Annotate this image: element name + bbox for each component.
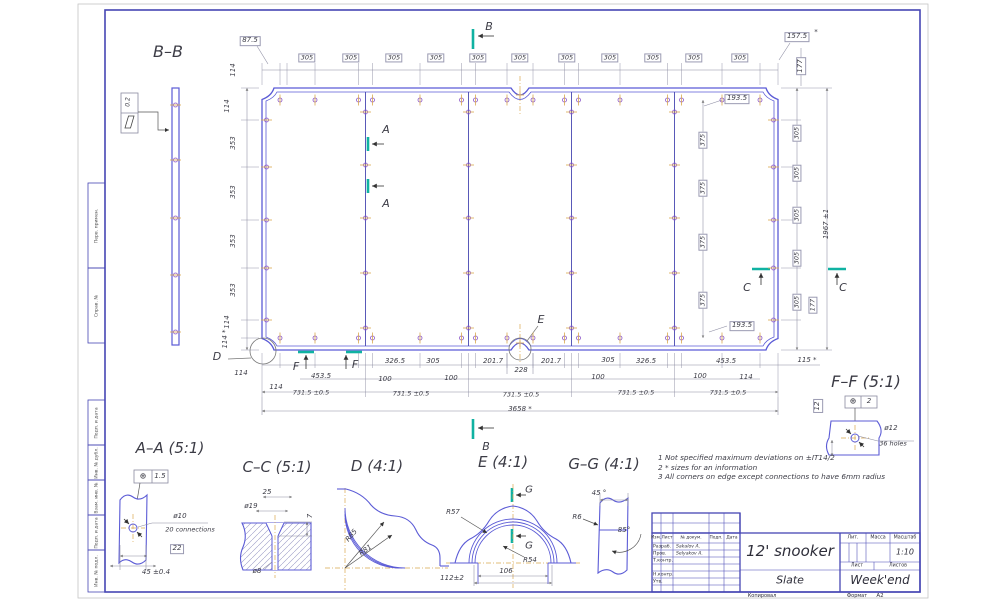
footer-format-label: Формат (847, 593, 867, 599)
footer-copy: Копировал (748, 593, 777, 599)
drawing-canvas (0, 0, 1000, 600)
row-role: Н.контр. (653, 572, 674, 577)
header-podp: Подп. (709, 536, 722, 541)
drawing-sheet: B–BA–A (5:1)C–C (5:1)D (4:1)E (4:1)G–G (… (0, 0, 1000, 600)
header-massa: Масса (870, 536, 885, 541)
title-block-title: 12' snooker (746, 542, 834, 560)
row-role: Т.контр. (653, 558, 673, 563)
header-sheet: Лист (851, 564, 863, 569)
row-role: Разраб. (653, 544, 671, 549)
row-role: Утв. (653, 579, 663, 584)
row-role: Пров. (653, 551, 666, 556)
title-block-company: Week'end (850, 573, 909, 587)
header-sheets: Листов (889, 564, 907, 569)
row-name: Selyakov A. (676, 551, 703, 556)
header-lit: Лит. (847, 536, 858, 541)
header-data: Дата (726, 536, 737, 541)
title-block-material: Slate (776, 574, 804, 587)
row-name: Sakalov A. (676, 544, 700, 549)
header-masshtab: Масштаб (894, 536, 917, 541)
header-izm: Изм. (651, 536, 661, 541)
title-block-scale: 1:10 (896, 548, 914, 557)
header-list: Лист (662, 536, 673, 541)
header-doc: № докум. (680, 536, 701, 541)
footer-format-value: A2 (876, 593, 883, 599)
